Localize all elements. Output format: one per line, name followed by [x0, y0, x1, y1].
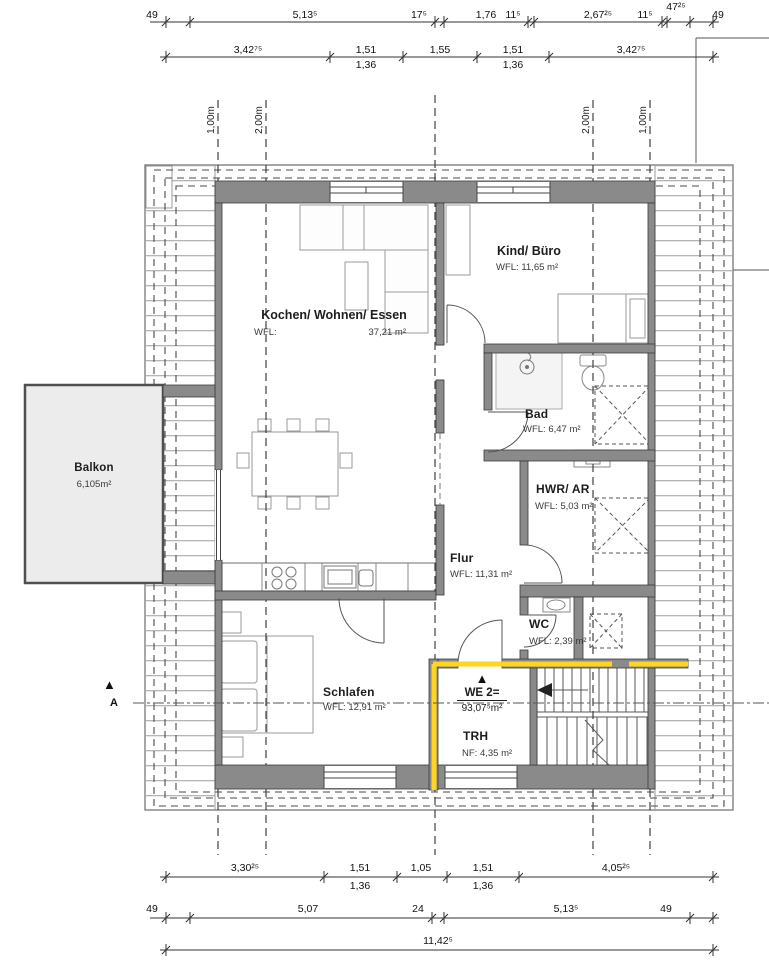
room-area-flur: WFL: 11,31 m²	[450, 569, 512, 580]
dim-label: 3,30²⁵	[220, 862, 270, 874]
dim-label: 11,42⁵	[413, 935, 463, 947]
wc-sink	[543, 598, 570, 612]
dim-sublabel: 1,36	[488, 59, 538, 71]
wall-hwr-wc	[520, 585, 655, 597]
roof-corner-box	[146, 166, 172, 208]
wall-kochen-flur-1	[436, 203, 444, 345]
pillow-2	[221, 689, 257, 731]
wall-wc-left-a	[520, 597, 528, 615]
dim-label: 49	[127, 9, 177, 21]
room-area-kind: WFL: 11,65 m²	[496, 262, 558, 273]
dining-table	[252, 432, 338, 496]
dim-label: 5,13⁵	[280, 9, 330, 21]
dim-label: 3,42⁷⁵	[223, 44, 273, 56]
we2-triangle-icon: ▲	[470, 671, 494, 686]
dim-label: 1,51	[458, 862, 508, 874]
wall-top	[215, 181, 655, 203]
room-label-kochen: Kochen/ Wohnen/ Essen	[238, 308, 430, 322]
wall-bad-hwr	[484, 450, 655, 461]
height-label-1m-right: 1,00m	[638, 97, 650, 143]
roof-hatch-right	[655, 166, 732, 809]
room-area-trh: NF: 4,35 m²	[462, 748, 512, 759]
dim-sublabel: 1,36	[341, 59, 391, 71]
room-area-schlafen: WFL: 12,91 m²	[323, 702, 386, 713]
height-label-1m-left: 1,00m	[206, 97, 218, 143]
kitchen-counter	[222, 563, 436, 591]
balcony-stub-bottom	[163, 571, 215, 584]
room-area-kochen: WFL: 37,21 m²	[254, 327, 406, 338]
room-label-hwr: HWR/ AR	[536, 482, 590, 496]
room-label-flur: Flur	[450, 551, 473, 565]
dim-label: 49	[693, 9, 743, 21]
dim-label: 49	[127, 903, 177, 915]
we2-label: WE 2=	[457, 687, 507, 701]
dim-label: 2,67²⁵	[573, 9, 623, 21]
dim-label: 1,55	[415, 44, 465, 56]
room-area-kochen-label: WFL:	[254, 327, 277, 338]
height-label-2m-right: 2,00m	[581, 97, 593, 143]
height-label-2m-left: 2,00m	[254, 97, 266, 143]
we2-area: 93,07⁵m²	[451, 703, 513, 714]
room-area-hwr: WFL: 5,03 m²	[535, 501, 593, 512]
wall-right	[648, 203, 655, 789]
room-label-kind: Kind/ Büro	[497, 244, 561, 258]
pillow-1	[221, 641, 257, 683]
room-label-schlafen: Schlafen	[323, 685, 375, 699]
dim-label: 1,51	[488, 44, 538, 56]
room-area-kochen-value: 37,21 m²	[369, 327, 407, 338]
wall-kochen-flur-3	[436, 505, 444, 595]
dim-label: 3,42⁷⁵	[606, 44, 656, 56]
dim-label: 5,07	[283, 903, 333, 915]
dim-label: 11⁵	[488, 9, 538, 21]
wall-wc-right	[574, 597, 583, 665]
wall-left-upper	[215, 203, 222, 470]
room-label-wc: WC	[529, 617, 549, 631]
dim-label: 1,51	[341, 44, 391, 56]
room-label-bad: Bad	[525, 407, 548, 421]
balcony-stub-top	[163, 385, 215, 397]
dim-sublabel: 1,36	[335, 880, 385, 892]
wall-bad-left	[484, 353, 492, 410]
room-label-balkon: Balkon	[58, 462, 130, 474]
section-triangle-icon: ▲	[103, 677, 116, 692]
room-area-wc: WFL: 2,39 m²	[529, 636, 587, 647]
room-area-bad: WFL: 6,47 m²	[523, 424, 581, 435]
dim-label: 5,13⁵	[541, 903, 591, 915]
dim-label: 49	[641, 903, 691, 915]
window-bottom-2	[445, 766, 517, 788]
window-bottom-1	[324, 766, 396, 788]
dim-sublabel: 1,36	[458, 880, 508, 892]
wall-kochen-schlafen	[215, 591, 436, 600]
wall-hwr-left	[520, 461, 528, 545]
dim-label: 17⁵	[394, 9, 444, 21]
dim-label: 1,05	[396, 862, 446, 874]
dim-label: 1,51	[335, 862, 385, 874]
wall-stair-left	[530, 668, 537, 765]
opening-kochen	[436, 345, 444, 380]
dim-label: 4,05²⁵	[591, 862, 641, 874]
room-area-balkon: 6,105m²	[58, 479, 130, 490]
floor-plan-page: { "rooms": { "kochen": {"name": "Kochen/…	[0, 0, 769, 960]
room-label-trh: TRH	[463, 729, 488, 743]
bed-kind-pillow	[630, 299, 645, 338]
section-label-a: A	[110, 697, 118, 709]
wall-kind-bad	[484, 344, 655, 353]
coffee-table	[345, 262, 368, 310]
wardrobe-kind	[446, 205, 470, 275]
dim-label: 24	[393, 903, 443, 915]
wall-kochen-flur-2	[436, 380, 444, 433]
